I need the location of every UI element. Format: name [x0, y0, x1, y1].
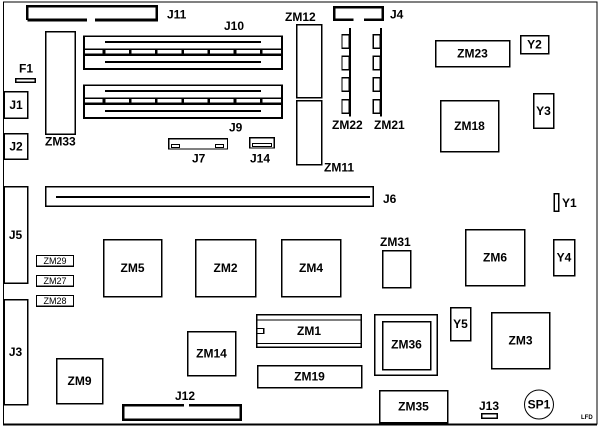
svg-text:LFD: LFD	[581, 415, 593, 421]
svg-text:J1: J1	[9, 98, 23, 112]
svg-text:J10: J10	[224, 19, 244, 33]
svg-text:J9: J9	[229, 121, 243, 135]
svg-text:J13: J13	[479, 399, 499, 413]
svg-text:ZM19: ZM19	[294, 370, 325, 384]
svg-text:Y4: Y4	[557, 251, 572, 265]
svg-text:SP1: SP1	[528, 398, 551, 412]
svg-text:ZM22: ZM22	[332, 118, 363, 132]
svg-text:ZM2: ZM2	[214, 261, 238, 275]
svg-text:Y1: Y1	[562, 196, 577, 210]
svg-text:ZM28: ZM28	[43, 296, 66, 306]
svg-text:J3: J3	[9, 345, 23, 359]
svg-text:J11: J11	[167, 8, 187, 22]
svg-text:ZM9: ZM9	[68, 374, 92, 388]
svg-text:Y3: Y3	[536, 104, 551, 118]
svg-text:ZM33: ZM33	[45, 135, 76, 149]
svg-text:J5: J5	[9, 228, 23, 242]
svg-text:J4: J4	[390, 8, 404, 22]
svg-text:ZM36: ZM36	[391, 338, 422, 352]
svg-text:ZM1: ZM1	[297, 324, 321, 338]
svg-text:ZM21: ZM21	[374, 118, 405, 132]
svg-text:ZM35: ZM35	[398, 400, 429, 414]
svg-text:J14: J14	[250, 152, 270, 166]
svg-text:ZM14: ZM14	[196, 347, 227, 361]
svg-text:ZM6: ZM6	[483, 251, 507, 265]
svg-text:ZM29: ZM29	[43, 256, 66, 266]
svg-text:J6: J6	[383, 192, 397, 206]
svg-text:Y2: Y2	[527, 38, 542, 52]
svg-text:ZM5: ZM5	[121, 261, 145, 275]
svg-text:J2: J2	[9, 140, 23, 154]
svg-text:ZM23: ZM23	[457, 47, 488, 61]
svg-text:F1: F1	[19, 62, 33, 76]
svg-text:ZM3: ZM3	[509, 334, 533, 348]
svg-text:ZM18: ZM18	[454, 119, 485, 133]
svg-text:ZM11: ZM11	[324, 161, 354, 175]
svg-text:Y5: Y5	[453, 317, 468, 331]
svg-text:J7: J7	[192, 152, 206, 166]
svg-text:J12: J12	[175, 389, 195, 403]
svg-text:ZM12: ZM12	[285, 10, 316, 24]
svg-text:ZM27: ZM27	[43, 276, 66, 286]
svg-text:ZM4: ZM4	[299, 261, 323, 275]
svg-text:ZM31: ZM31	[380, 235, 411, 249]
